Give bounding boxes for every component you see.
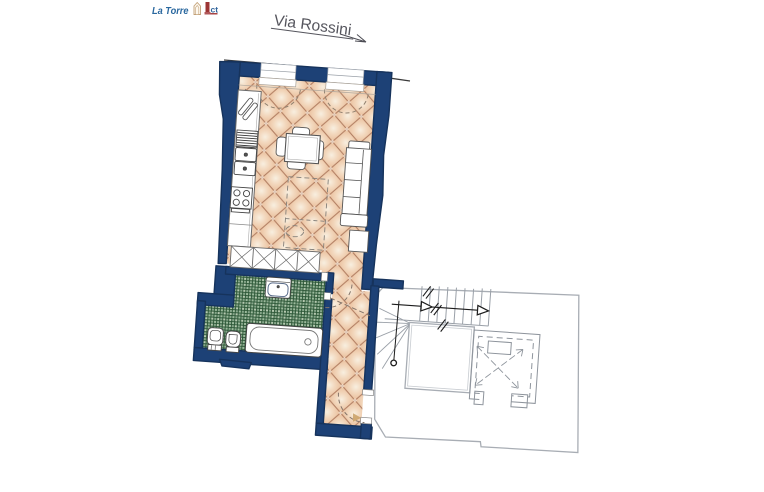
svg-text:Via Rossini: Via Rossini xyxy=(273,12,353,39)
svg-text:La Torre: La Torre xyxy=(152,5,189,17)
